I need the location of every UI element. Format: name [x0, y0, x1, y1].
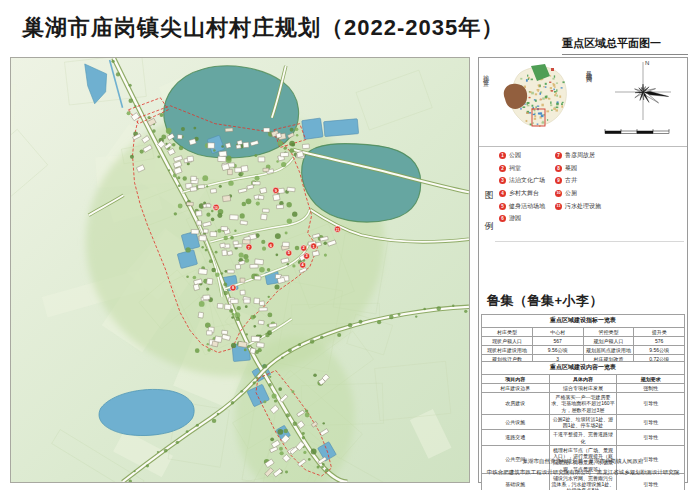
- table1-cell: 9.56公顷: [634, 346, 685, 355]
- map-marker: 8: [230, 285, 236, 291]
- map-marker: 5: [286, 250, 292, 256]
- table2-cell: 公共设施: [482, 414, 550, 430]
- legend-item: 3法治文化广场: [499, 174, 545, 187]
- legend-number-badge: 2: [499, 165, 506, 172]
- map-marker: 1: [311, 243, 317, 249]
- table2-cell: 干道平整提升、完善道路绿化: [549, 430, 617, 446]
- legend-column-2: 7鲁彦周故居8菜园9古井10公厕11污水处理设施: [555, 149, 601, 212]
- table2-cell: 严格落实一户一宅建房要求、宅基地面积不超过160平方，层数不超过3层: [549, 393, 617, 415]
- legend-number-badge: 10: [555, 190, 562, 197]
- table1-cell: 规划居民点建设用地: [583, 346, 634, 355]
- legend-item-label: 鲁彦周故居: [565, 151, 595, 160]
- legend-item: 1公园: [499, 149, 545, 162]
- table1-cell: 9.56公顷: [532, 346, 583, 355]
- table2-row: 公共设施公厕2处、垃圾转运1处、游园1处、停车场2处引导性: [482, 414, 685, 430]
- table1-cell: 村庄类型: [482, 327, 533, 336]
- legend-item: 8菜园: [555, 162, 601, 175]
- table2-cell: 道路交通: [482, 430, 550, 446]
- table1-cell: 现状村庄建设用地: [482, 346, 533, 355]
- master-plan-map: 1234567891011: [10, 57, 470, 483]
- legend-item-label: 法治文化广场: [509, 176, 545, 185]
- credit-line: 中铁合肥建筑市政工程设计研究院有限公司 黑龙江省城乡规划勘测设计研究院: [479, 467, 687, 478]
- legend-item-label: 健身活动场地: [509, 202, 545, 211]
- map-marker: 11: [334, 226, 340, 232]
- legend-item-label: 游园: [509, 214, 521, 223]
- legend-divider: [495, 241, 684, 242]
- table1-cell: 管控类型: [583, 327, 634, 336]
- legend-item: 2祠堂: [499, 162, 545, 175]
- location-windrose-section: 地块位置 风玫瑰与比例尺 N: [479, 58, 687, 147]
- table2-title: 重点区域建设内容一览表: [482, 362, 685, 375]
- legend-item: 10公厕: [555, 187, 601, 200]
- legend-number-badge: 9: [555, 177, 562, 184]
- table1-row: 村庄类型中心村管控类型提升类: [482, 327, 685, 336]
- sidebar: 地块位置 风玫瑰与比例尺 N 图例 1公园2祠堂3法治文化广场4乡村大舞台5健身…: [478, 57, 688, 483]
- map-marker: 6: [268, 242, 274, 248]
- table2-row: 农房建设严格落实一户一宅建房要求、宅基地面积不超过160平方，层数不超过3层引导…: [482, 393, 685, 415]
- map-marker: 2: [301, 245, 307, 251]
- legend-item: 4乡村大舞台: [499, 187, 545, 200]
- legend-item-label: 污水处理设施: [565, 202, 601, 211]
- legend-item-label: 菜园: [565, 164, 577, 173]
- page-title: 巢湖市庙岗镇尖山村村庄规划（2022-2035年）: [22, 13, 504, 43]
- legend-number-badge: 1: [499, 152, 506, 159]
- legend-number-badge: 4: [499, 190, 506, 197]
- table2-cell: 引导性: [617, 393, 685, 415]
- sheet-number-label: 重点区域总平面图一: [562, 36, 688, 55]
- legend-number-badge: 5: [499, 203, 506, 210]
- table1-cell: 规划户籍人口: [583, 336, 634, 345]
- legend-number-badge: 6: [499, 215, 506, 222]
- map-marker: 3: [304, 253, 310, 259]
- table1-cell: 576: [634, 336, 685, 345]
- location-label: 地块位置: [481, 70, 490, 78]
- area-section-title: 鲁集（鲁集+小李）: [487, 292, 603, 310]
- legend-number-badge: 11: [555, 203, 562, 210]
- table1-row: 现状户籍人口567规划户籍人口576: [482, 336, 685, 345]
- legend-item: 11污水处理设施: [555, 200, 601, 213]
- table2-header-row: 项目内容具体内容规划要求: [482, 374, 685, 383]
- table1-row: 现状村庄建设用地9.56公顷规划居民点建设用地9.56公顷: [482, 346, 685, 355]
- svg-text:10: 10: [214, 206, 218, 210]
- location-minimap: [495, 61, 581, 141]
- table2-cell: 公厕2处、垃圾转运1处、游园1处、停车场2处: [549, 414, 617, 430]
- table1-title: 重点区域建设指标一览表: [482, 315, 685, 328]
- legend-item-label: 祠堂: [509, 164, 521, 173]
- table1-cell: 提升类: [634, 327, 685, 336]
- map-marker: 10: [213, 204, 219, 210]
- legend-item: 7鲁彦周故居: [555, 149, 601, 162]
- table1-cell: 567: [532, 336, 583, 345]
- table2-header-cell: 规划要求: [617, 374, 685, 383]
- table2-header-cell: 项目内容: [482, 374, 550, 383]
- table2-cell: 引导性: [617, 430, 685, 446]
- legend-item: 6游园: [499, 212, 545, 225]
- table2-row: 道路交通干道平整提升、完善道路绿化引导性: [482, 430, 685, 446]
- table2-cell: 引导性: [617, 414, 685, 430]
- legend-item: 5健身活动场地: [499, 200, 545, 213]
- wind-rose: N: [597, 59, 687, 145]
- table2-row: 村庄建设边界综合专项村庄发展强制性: [482, 383, 685, 392]
- legend-number-badge: 3: [499, 177, 506, 184]
- village-plan-drawing: 1234567891011: [11, 58, 469, 482]
- legend-title: 图例: [482, 184, 495, 244]
- table1-cell: 现状户籍人口: [482, 336, 533, 345]
- credit-line: 巢湖市自然资源和规划局 巢湖市庙岗镇人民政府: [479, 456, 687, 467]
- table2-cell: 强制性: [617, 383, 685, 392]
- table2-cell: 村庄建设边界: [482, 383, 550, 392]
- windrose-label: 风玫瑰与比例尺: [584, 66, 593, 73]
- legend-item: 9古井: [555, 174, 601, 187]
- legend-column-1: 1公园2祠堂3法治文化广场4乡村大舞台5健身活动场地6游园: [499, 149, 545, 225]
- svg-text:11: 11: [336, 228, 340, 232]
- legend-item-label: 公厕: [565, 189, 577, 198]
- table2-cell: 综合专项村庄发展: [549, 383, 617, 392]
- map-marker: 7: [246, 244, 252, 250]
- map-marker: 9: [273, 187, 279, 193]
- legend-item-label: 公园: [509, 151, 521, 160]
- table2-header-cell: 具体内容: [549, 374, 617, 383]
- map-marker: 4: [300, 262, 306, 268]
- table1-cell: 中心村: [532, 327, 583, 336]
- legend-item-label: 古井: [565, 176, 577, 185]
- legend-number-badge: 7: [555, 152, 562, 159]
- legend-item-label: 乡村大舞台: [509, 189, 539, 198]
- credits: 巢湖市自然资源和规划局 巢湖市庙岗镇人民政府中铁合肥建筑市政工程设计研究院有限公…: [479, 456, 687, 478]
- table2-cell: 农房建设: [482, 393, 550, 415]
- legend-number-badge: 8: [555, 165, 562, 172]
- plan-sheet: { "title": "巢湖市庙岗镇尖山村村庄规划（2022-2035年）", …: [0, 0, 693, 490]
- svg-text:N: N: [645, 60, 649, 66]
